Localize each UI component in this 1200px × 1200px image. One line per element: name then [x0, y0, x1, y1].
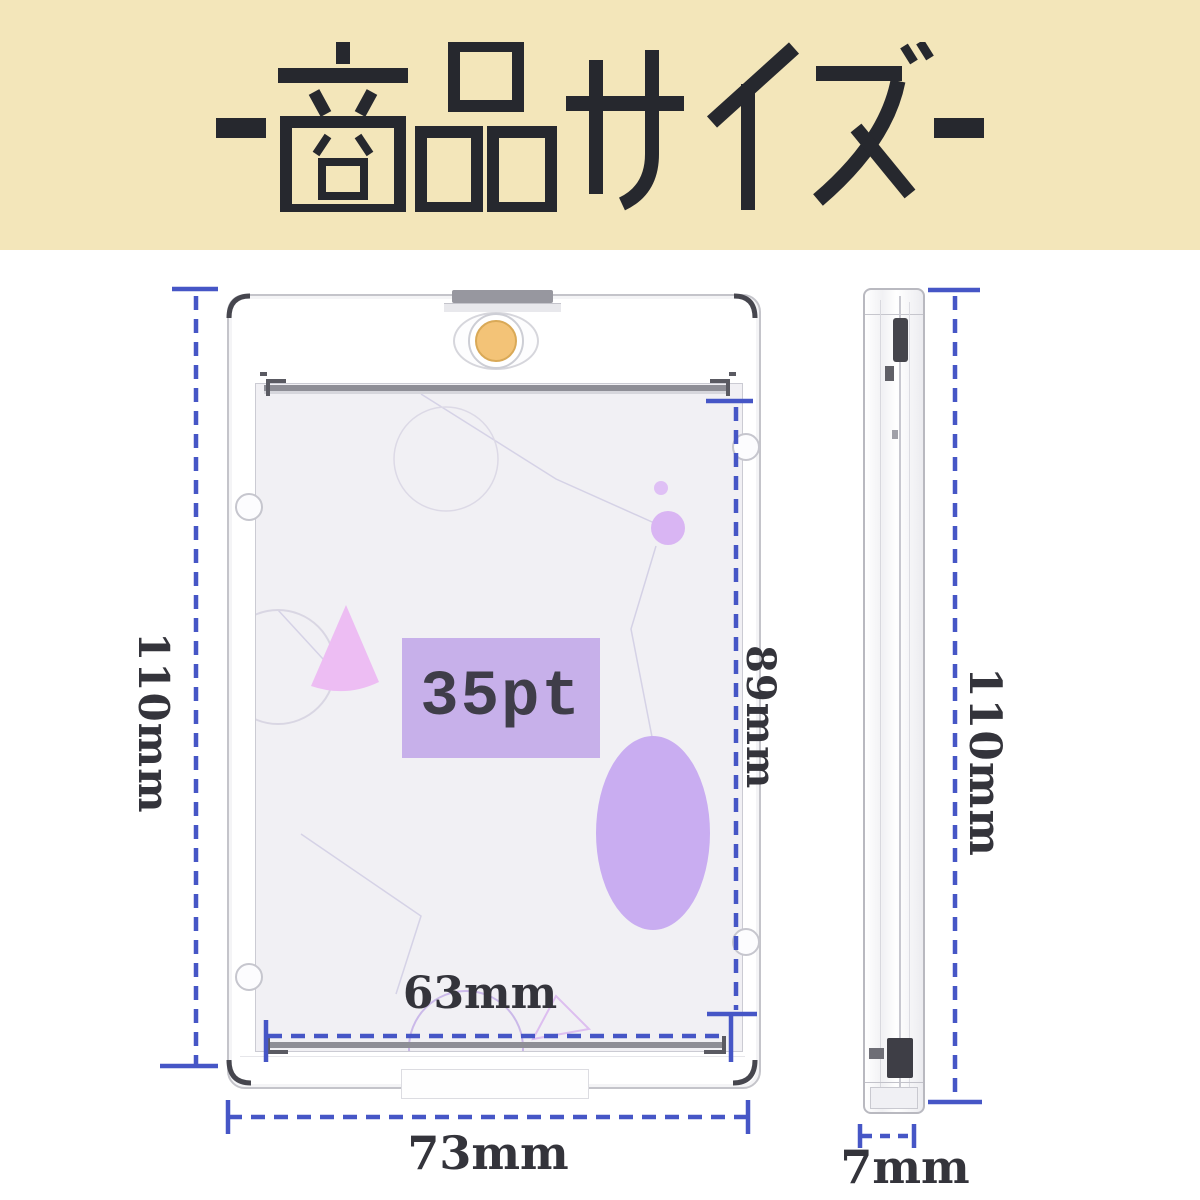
side-small-mark [892, 430, 898, 439]
front-inner-height-label: 89mm [740, 642, 784, 792]
window-bottom-bar [264, 1042, 724, 1048]
small-purple-dot [654, 481, 668, 495]
frame-notch-circle [732, 433, 760, 461]
side-base-block [870, 1087, 918, 1109]
pink-cone-shape [311, 605, 379, 691]
side-magnet-bottom [887, 1038, 913, 1078]
side-latch-mark-bottom [869, 1048, 884, 1059]
small-purple-circle [651, 511, 685, 545]
side-height-label: 110mm [960, 662, 1010, 862]
side-seam-line [909, 302, 910, 1096]
side-magnet-top [893, 318, 908, 362]
product-size-infographic: -商品サイズ- [0, 0, 1200, 1200]
frame-notch-circle [235, 493, 263, 521]
holder-top-tab-base [444, 303, 561, 312]
holder-bottom-tab [401, 1069, 589, 1099]
card-holder-side-view [863, 288, 925, 1114]
side-seam-line [880, 300, 881, 1100]
frame-notch-circle [235, 963, 263, 991]
side-seam-line [899, 296, 901, 1104]
faint-circle-top [394, 407, 498, 511]
page-title: -商品サイズ- [0, 0, 1, 1]
banner: -商品サイズ- [0, 0, 1200, 250]
card-capacity-badge: 35pt [402, 638, 600, 758]
page-title-drawing [216, 42, 984, 212]
side-thickness-label: 7mm [835, 1140, 975, 1190]
side-latch-mark [885, 366, 894, 381]
side-cap-line [865, 314, 923, 315]
holder-bottom-seam [240, 1056, 745, 1057]
front-outer-height-label: 110mm [130, 628, 178, 818]
magnet-button-gold [475, 320, 517, 362]
holder-top-tab [452, 290, 553, 303]
front-outer-width-label: 73mm [388, 1126, 588, 1178]
large-purple-ellipse [596, 736, 710, 930]
window-top-bar-shadow [264, 391, 728, 394]
frame-notch-circle [732, 928, 760, 956]
front-inner-width-label: 63mm [390, 968, 570, 1018]
side-base-line [865, 1082, 923, 1083]
